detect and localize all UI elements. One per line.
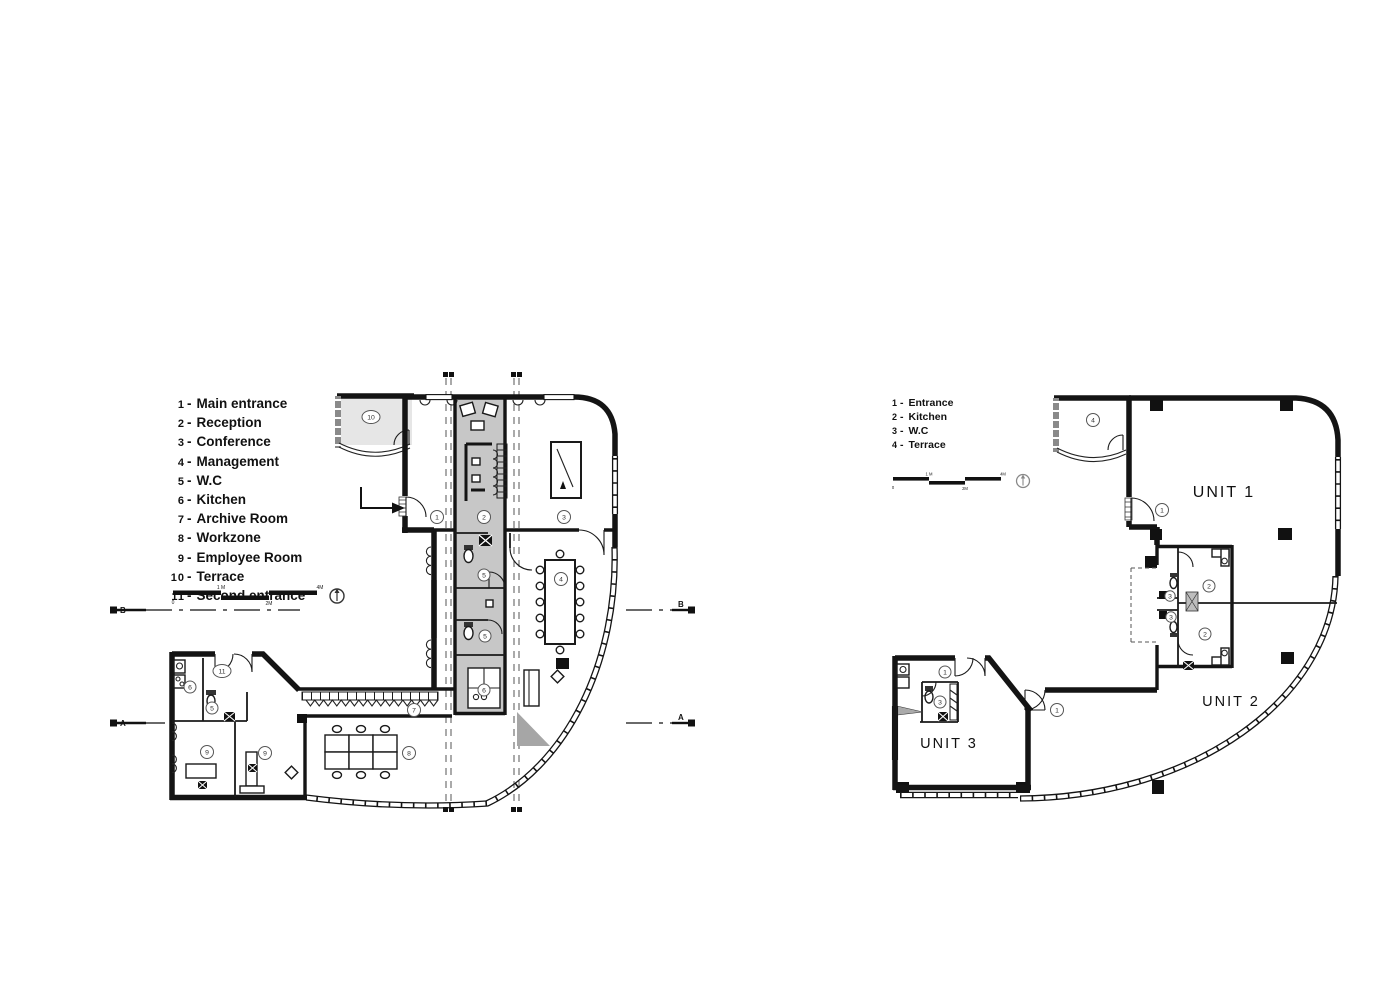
west-windows: [426, 547, 431, 668]
room-marker-employee-a: 9: [201, 746, 214, 759]
workzone-desks: [325, 726, 397, 779]
svg-text:4M: 4M: [317, 585, 324, 591]
outer-walls-top: [405, 397, 615, 547]
room-marker-management: 4: [555, 573, 568, 586]
svg-text:1: 1: [435, 515, 439, 522]
unit1-label: UNIT 1: [1193, 484, 1255, 501]
room-marker-wc-mid: 5: [479, 630, 491, 642]
room-marker-unit1-entrance: 1: [1156, 504, 1169, 517]
room-marker-second-entrance: 11: [213, 665, 231, 678]
north-arrow-icon: [330, 589, 344, 604]
svg-text:3: 3: [1168, 594, 1172, 601]
svg-text:3: 3: [938, 700, 942, 707]
svg-text:7: 7: [412, 708, 416, 715]
north-arrow-icon: [1017, 475, 1030, 488]
room-marker-conference: 3: [558, 511, 571, 524]
unit1-entrance: [1125, 498, 1154, 521]
unit2-label: UNIT 2: [1202, 694, 1260, 710]
room-marker-unit3-entrance: 1: [939, 666, 951, 678]
room-marker-reception: 2: [478, 511, 491, 524]
room-marker-unit2-wc: 3: [1166, 612, 1176, 622]
svg-text:1: 1: [1055, 708, 1059, 715]
svg-text:5: 5: [210, 706, 214, 713]
unit3-label: UNIT 3: [920, 736, 978, 752]
conference-board: [551, 442, 581, 498]
terrace-unit: [1054, 398, 1131, 462]
room-marker-terrace: 10: [362, 411, 380, 424]
svg-text:2M: 2M: [962, 486, 968, 491]
management-room: [510, 533, 584, 706]
svg-text:2M: 2M: [266, 601, 273, 607]
room-marker-unit2-entrance: 1: [1051, 704, 1064, 717]
svg-text:4M: 4M: [1000, 472, 1006, 477]
svg-text:3: 3: [1169, 615, 1173, 622]
floor-plan-sheet: 1-Main entrance 2-Reception 3-Conference…: [0, 0, 1400, 1000]
unit2-entry: [1025, 690, 1157, 710]
archive-room: [298, 689, 455, 716]
svg-text:2: 2: [482, 515, 486, 522]
scale-bar-right: 0 1 M 2M 4M: [892, 472, 1007, 492]
room-marker-archive: 7: [408, 704, 421, 717]
section-letter-a-right: A: [678, 713, 684, 722]
west-facade: [402, 530, 434, 690]
room-marker-kitchen-core: 6: [478, 684, 490, 696]
room-marker-unit3-wc: 3: [934, 696, 946, 708]
room-marker-workzone: 8: [403, 747, 416, 760]
svg-text:5: 5: [483, 634, 487, 641]
entrance-arrow-icon: [361, 487, 405, 514]
svg-text:1: 1: [1160, 508, 1164, 515]
gray-wedge: [517, 712, 550, 746]
svg-text:10: 10: [367, 415, 375, 422]
svg-text:4: 4: [1091, 418, 1095, 425]
svg-text:4: 4: [559, 577, 563, 584]
svg-text:2: 2: [1203, 632, 1207, 639]
svg-text:9: 9: [263, 751, 267, 758]
svg-text:2: 2: [1207, 584, 1211, 591]
svg-text:1 M: 1 M: [926, 472, 933, 477]
svg-text:6: 6: [482, 688, 486, 695]
section-letter-b-right: B: [678, 600, 684, 609]
unit1-window: [1336, 457, 1341, 529]
room-marker-unit1-kitchen: 2: [1203, 580, 1215, 592]
room-marker-wc-west: 5: [206, 702, 218, 714]
room-marker-wc-top: 5: [478, 569, 490, 581]
room-marker-main-entrance: 1: [431, 511, 444, 524]
svg-text:11: 11: [218, 669, 225, 676]
svg-text:9: 9: [205, 750, 209, 757]
plan-office-fitout: B B A A: [100, 360, 720, 830]
svg-text:5: 5: [482, 573, 486, 580]
conference-window: [613, 456, 618, 514]
main-entrance: [361, 487, 426, 517]
svg-text:0: 0: [172, 600, 175, 606]
room-marker-terrace-4: 4: [1087, 414, 1100, 427]
west-wing: [170, 652, 307, 800]
unit3: [893, 656, 1031, 798]
service-cluster: [1131, 545, 1232, 690]
svg-text:8: 8: [407, 751, 411, 758]
svg-text:3: 3: [562, 515, 566, 522]
scale-bar-left: 0 1 M 2M 4M: [172, 585, 324, 607]
plan-unit-layout: 0 1 M 2M 4M UNIT 1 UNIT 2 UNIT 3 4 1 2 3…: [870, 380, 1370, 820]
svg-text:0: 0: [892, 485, 895, 490]
svg-text:1: 1: [943, 670, 947, 677]
room-marker-unit1-wc: 3: [1165, 591, 1175, 601]
room-marker-unit2-kitchen: 2: [1199, 628, 1211, 640]
svg-text:6: 6: [188, 685, 192, 692]
svg-text:1 M: 1 M: [217, 585, 225, 591]
room-marker-employee-b: 9: [259, 747, 272, 760]
room-marker-kitchen-west: 6: [184, 681, 196, 693]
